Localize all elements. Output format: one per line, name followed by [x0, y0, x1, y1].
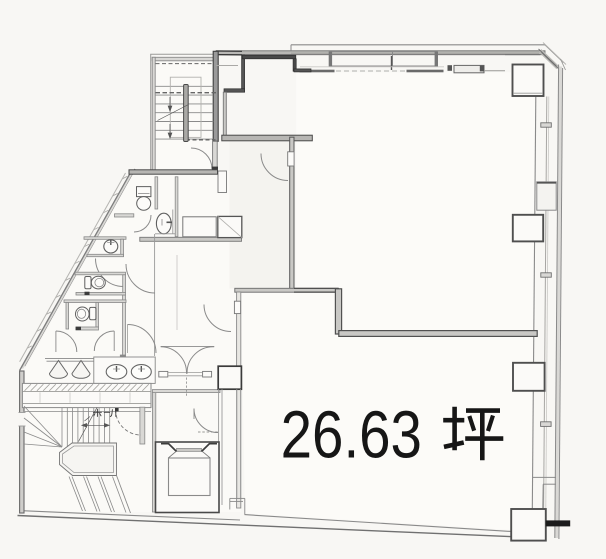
svg-text:26.63: 26.63	[281, 398, 422, 473]
